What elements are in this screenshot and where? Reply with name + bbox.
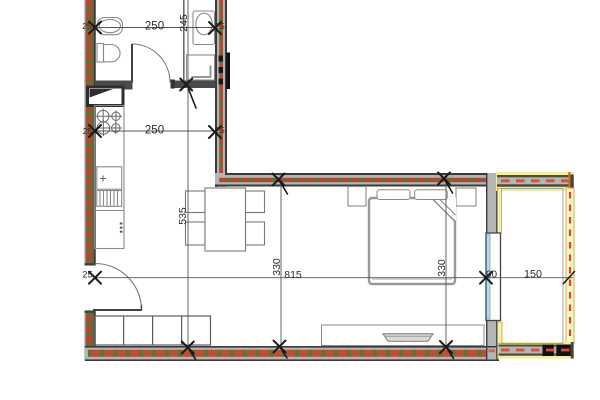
svg-text:330: 330 (436, 259, 448, 277)
svg-text:250: 250 (145, 125, 164, 137)
svg-text:815: 815 (284, 269, 302, 281)
svg-text:25: 25 (83, 126, 93, 136)
svg-text:535: 535 (177, 207, 189, 225)
svg-text:150: 150 (524, 269, 542, 281)
svg-text:25: 25 (215, 21, 225, 31)
svg-text:25: 25 (82, 21, 92, 31)
svg-text:250: 250 (145, 21, 164, 33)
svg-text:25: 25 (215, 125, 225, 135)
svg-text:245: 245 (178, 14, 190, 32)
svg-text:90: 90 (486, 270, 498, 281)
svg-text:330: 330 (271, 258, 283, 276)
svg-text:25: 25 (82, 270, 93, 281)
